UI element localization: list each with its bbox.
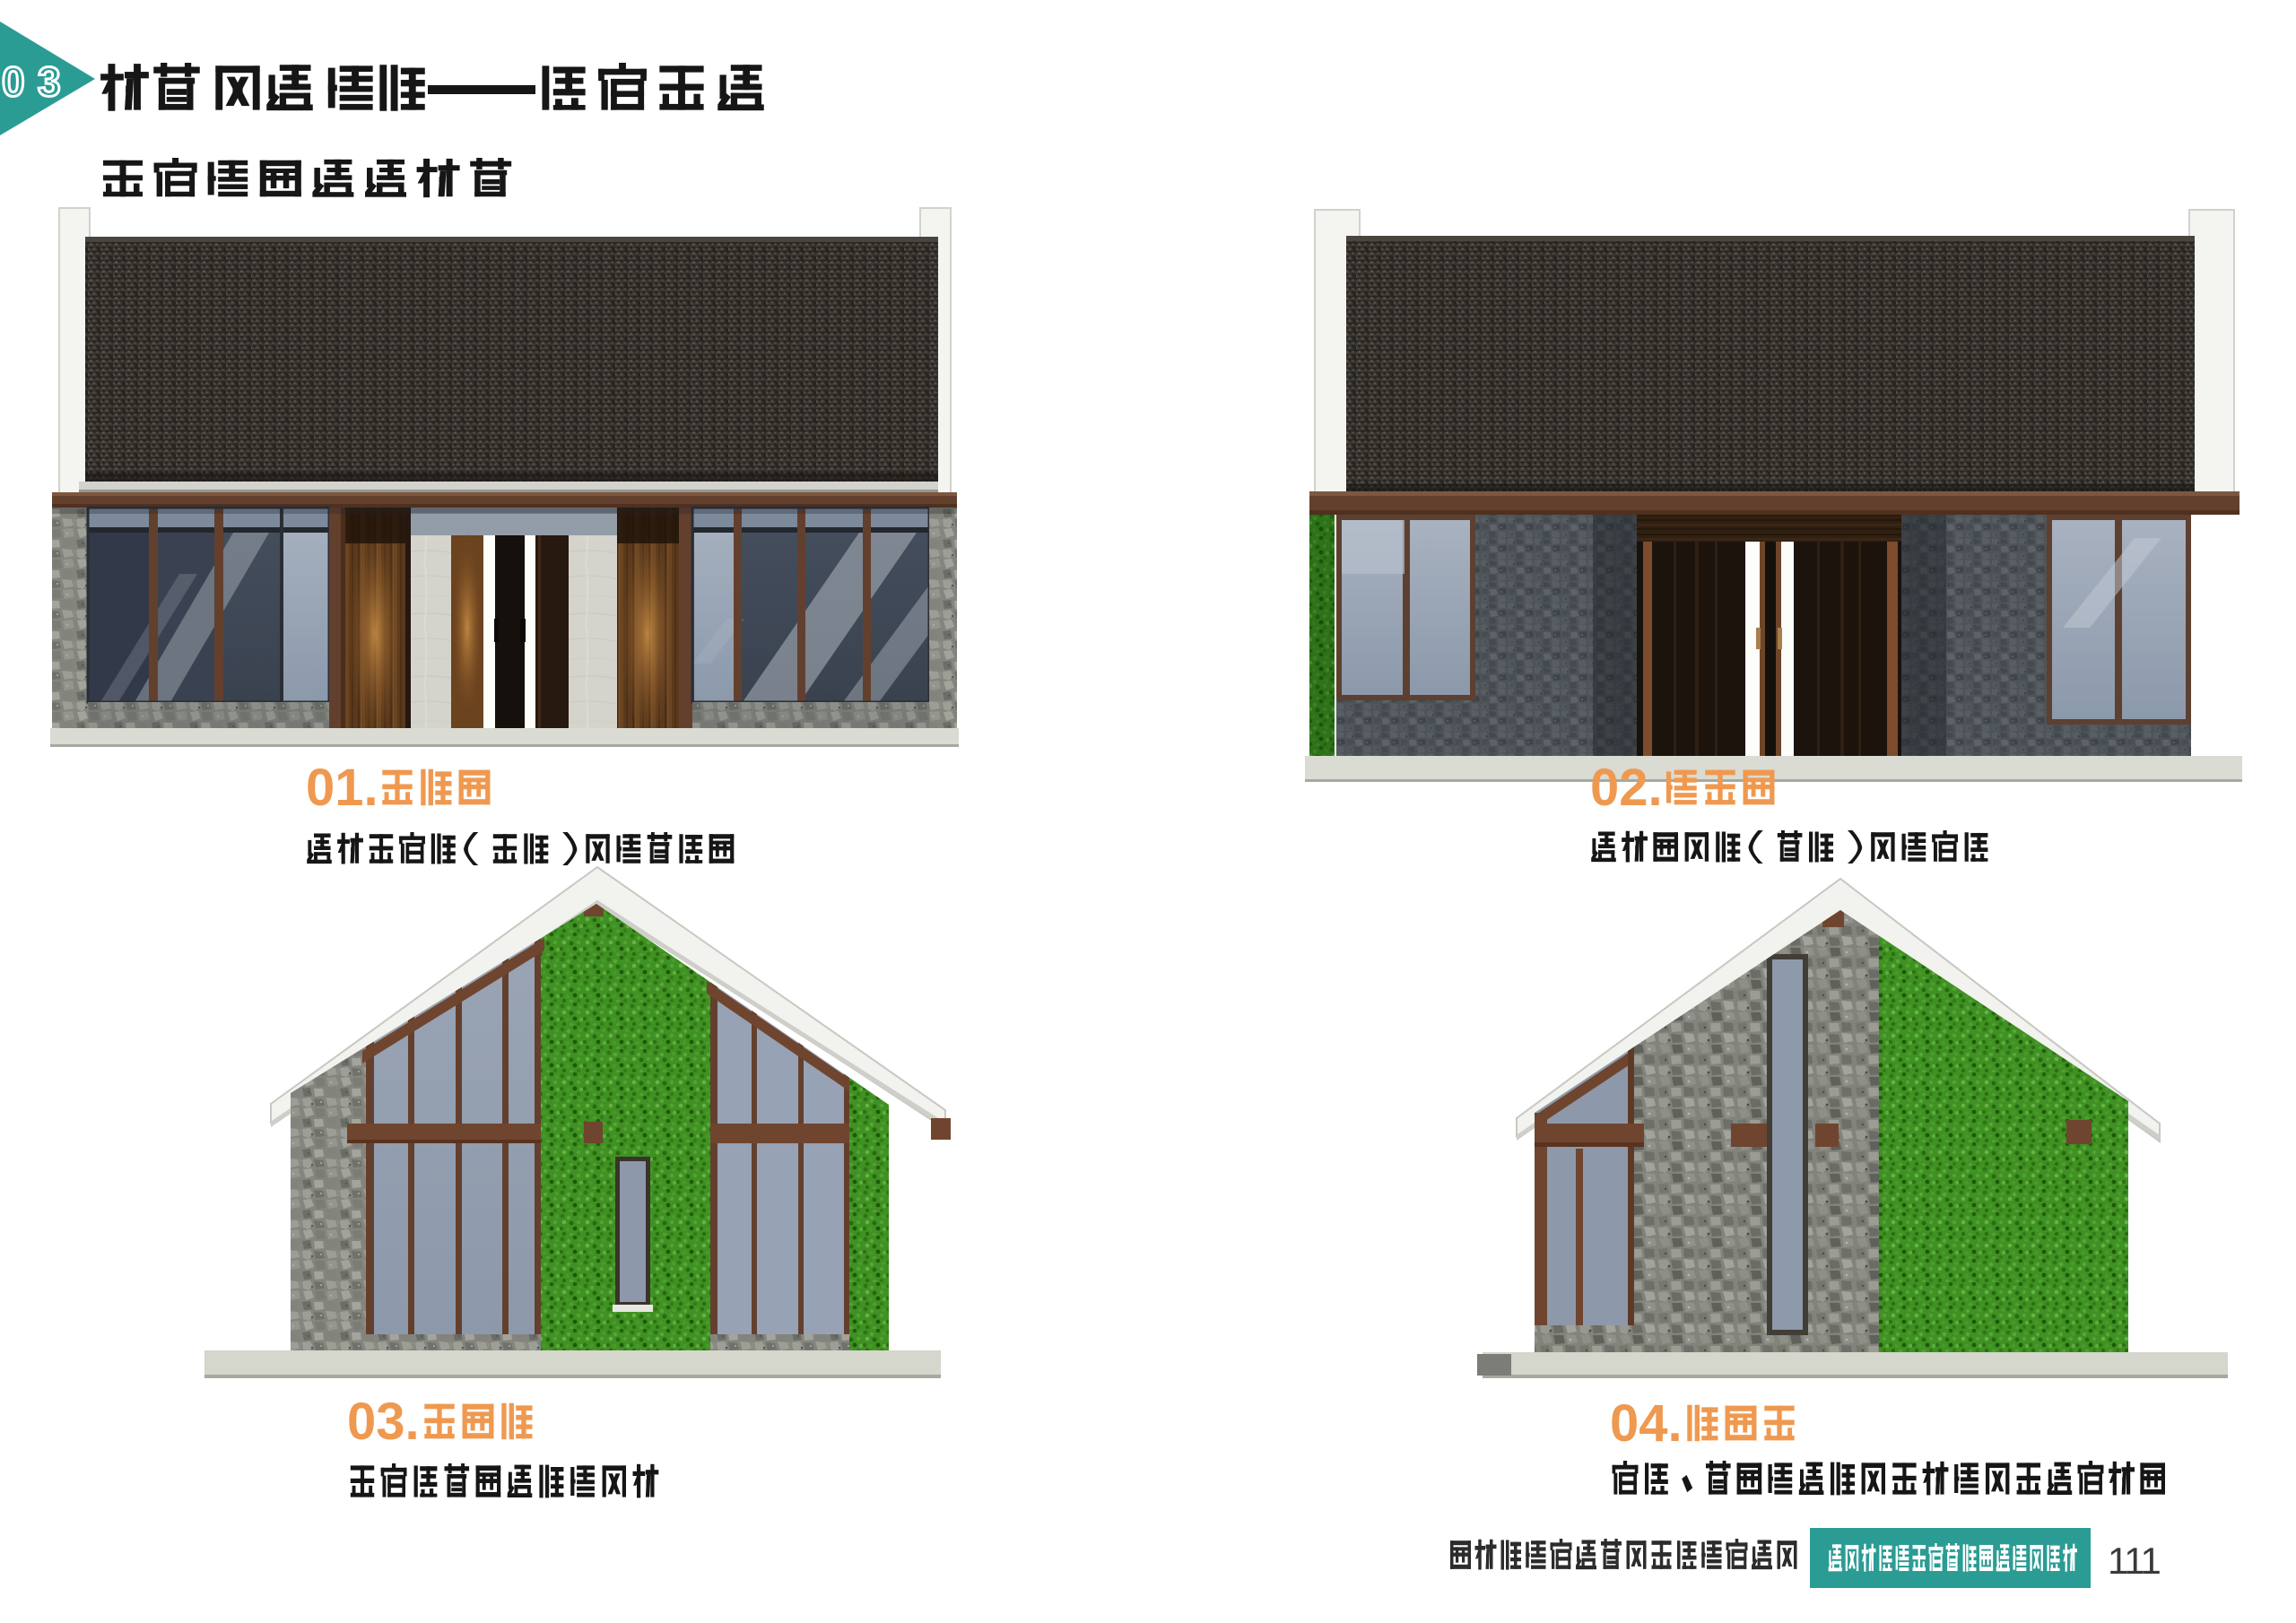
svg-text:111: 111 [2108,1540,2160,1582]
svg-text:02.: 02. [1590,759,1663,817]
svg-text:03.: 03. [347,1393,420,1451]
svg-text:3: 3 [38,58,61,105]
svg-text:0: 0 [2,58,25,105]
svg-text:01.: 01. [306,759,378,817]
svg-text:04.: 04. [1610,1394,1683,1453]
